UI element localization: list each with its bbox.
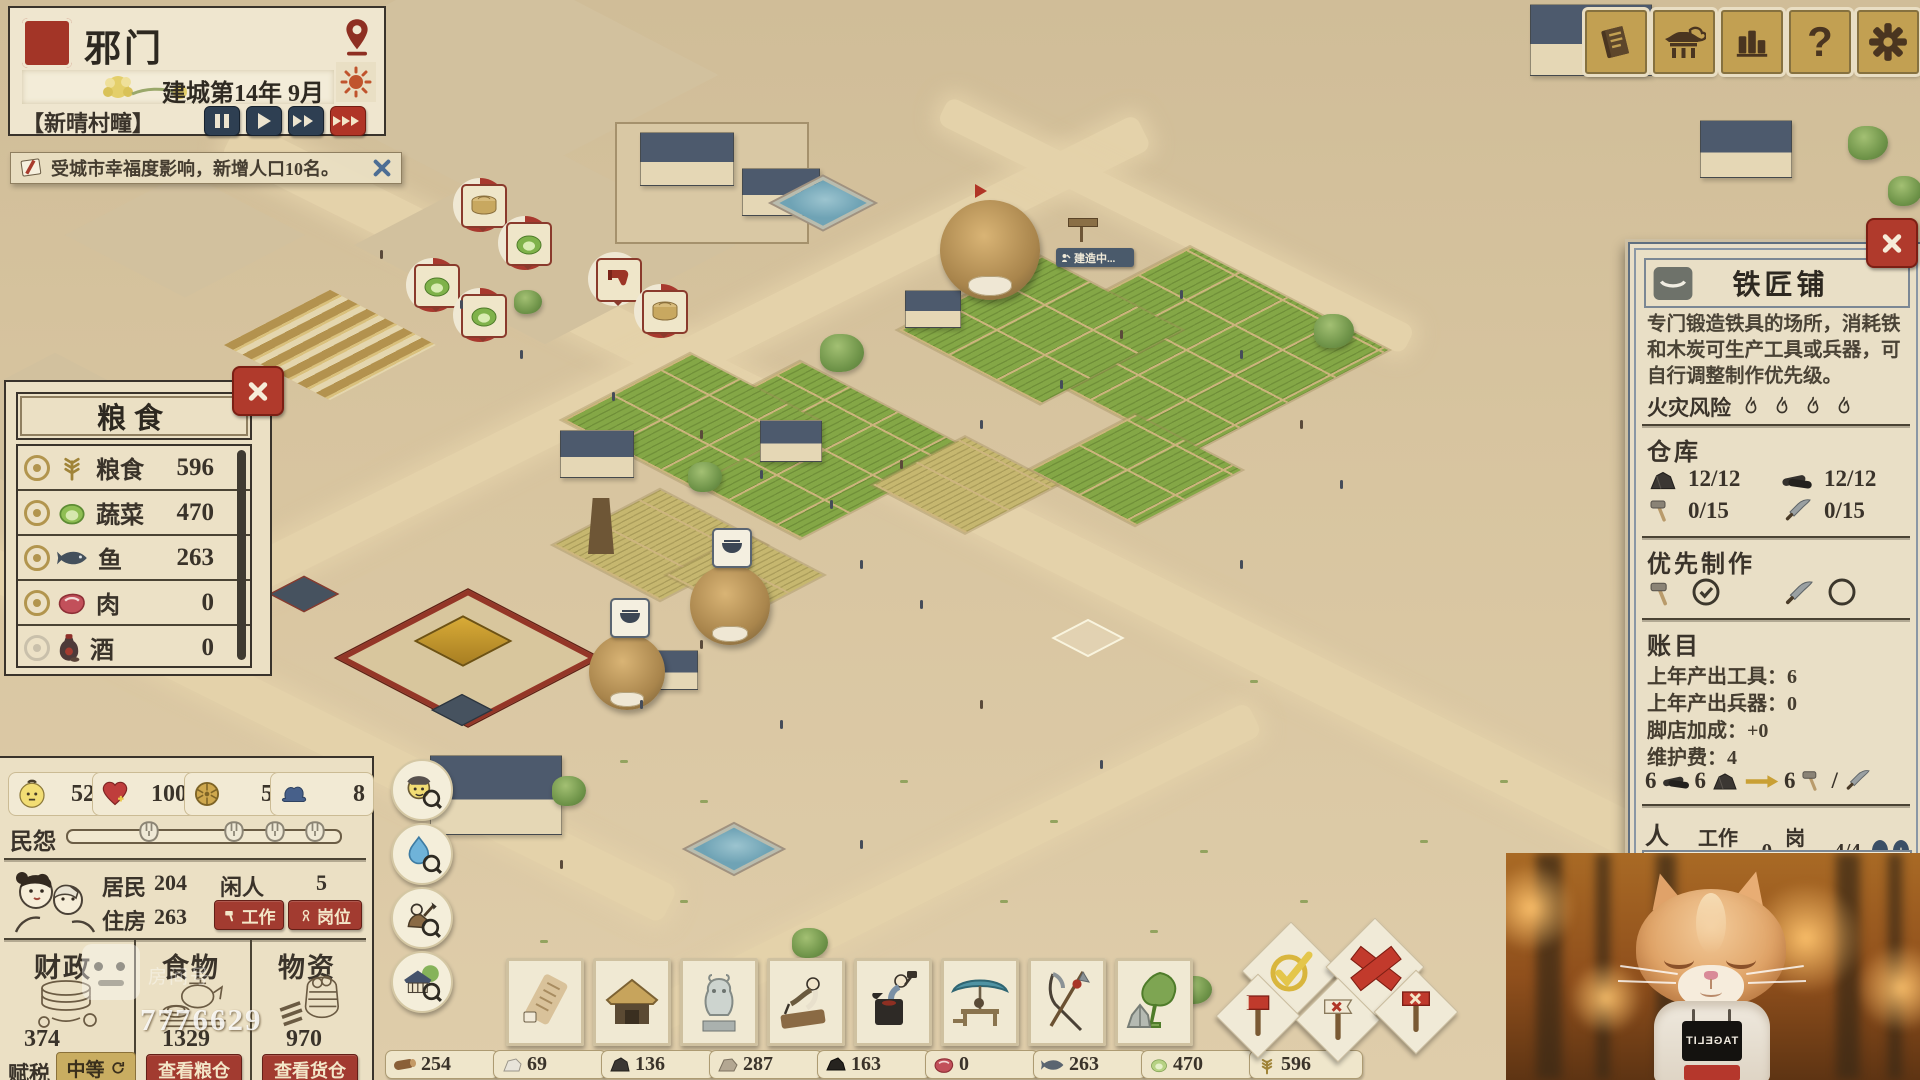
pin-toggle[interactable]: [24, 545, 50, 571]
view-warehouse-label: 查看货仓: [274, 1057, 346, 1080]
clay-icon: [716, 1056, 740, 1074]
temple-tree-icon: [1662, 22, 1706, 62]
resource-clay[interactable]: 287: [709, 1050, 823, 1079]
room-number: 7776629: [140, 1002, 263, 1038]
iron-ore-icon: [608, 1056, 632, 1074]
worker-magnifier-icon: [401, 897, 443, 939]
thumbs-down-icon: [606, 268, 632, 292]
tree-rock-card-art: [1124, 969, 1184, 1035]
food-name: 酒: [90, 630, 114, 665]
buildings-overview-button[interactable]: [1653, 10, 1715, 74]
vegetable-icon: [1148, 1056, 1170, 1074]
hoodie-red-patch: [1684, 1065, 1740, 1080]
population-chip[interactable]: 52: [8, 772, 104, 816]
finance-value: 374: [24, 1026, 60, 1053]
resource-meat[interactable]: 0: [925, 1050, 1039, 1079]
settings-button[interactable]: [1857, 10, 1919, 74]
resource-value: 163: [851, 1053, 881, 1076]
cat-eye-right: [1726, 951, 1756, 969]
food-row[interactable]: 蔬菜 470: [18, 491, 250, 536]
fire-risk-row: 火灾风险: [1647, 392, 1855, 422]
tree: [1848, 126, 1888, 160]
tool-hammer-icon: [1647, 498, 1679, 524]
resource-fish[interactable]: 263: [1033, 1050, 1147, 1079]
formula-charcoal-count: 6: [1645, 768, 1657, 794]
tax-level-button[interactable]: 中等: [56, 1052, 136, 1080]
inspect-workers-button[interactable]: [391, 887, 453, 949]
work-button[interactable]: 工作: [214, 900, 284, 930]
official-value: 8: [353, 781, 365, 808]
refresh-icon: [110, 1060, 126, 1076]
residents-couple-art: [6, 864, 96, 934]
fish-icon: [1040, 1057, 1066, 1073]
smithy-icon: [1653, 267, 1693, 300]
ledger-title: 账目: [1647, 626, 1701, 661]
notification-text: 受城市幸福度影响，新增人口10名。: [51, 155, 339, 181]
facecam-overlay: TAGELIT: [1506, 853, 1920, 1080]
tree: [552, 776, 586, 806]
pin-toggle[interactable]: [24, 500, 50, 526]
resource-value: 596: [1281, 1053, 1311, 1076]
food-name: 蔬菜: [96, 495, 144, 530]
building-magnifier-icon: [401, 961, 443, 1003]
food-value: 0: [202, 634, 215, 662]
inspect-water-button[interactable]: [391, 823, 453, 885]
ledger-line: 上年产出工具：6: [1647, 660, 1797, 689]
season-banner: 建城第14年 9月: [22, 70, 334, 104]
iron-stock: 12/12: [1688, 466, 1740, 492]
meat-icon: [56, 590, 88, 616]
food-rows: 粮食 596 蔬菜 470 鱼 263 肉 0: [16, 444, 252, 668]
food-name: 鱼: [98, 540, 122, 575]
hammer-icon: [223, 908, 238, 923]
villager-request-bubble: [504, 220, 550, 270]
villager-request-bubble: [412, 262, 458, 312]
meat-icon: [932, 1056, 956, 1074]
food-value: 0: [202, 589, 215, 617]
blacksmith-close-button[interactable]: [1866, 218, 1918, 268]
priority-title: 优先制作: [1647, 544, 1755, 579]
house[interactable]: [905, 290, 961, 328]
food-row[interactable]: 酒 0: [18, 626, 250, 669]
resource-iron[interactable]: 136: [601, 1050, 715, 1079]
ledger-line: 脚店加成：+0: [1647, 714, 1768, 743]
flame-icon: [1771, 395, 1793, 419]
house[interactable]: [1700, 120, 1792, 178]
charcoal-stock: 12/12: [1824, 466, 1876, 492]
villager-request-bubble: [594, 256, 640, 306]
location-pin-icon[interactable]: [342, 18, 372, 58]
play-icon: [258, 113, 279, 129]
question-mark-icon: ?: [1807, 18, 1833, 66]
flag-axe-icon: [1318, 997, 1358, 1043]
flag: [975, 184, 994, 198]
formula-output-count: 6: [1784, 768, 1796, 794]
meal-request-bubble: [712, 528, 752, 568]
work-button-label: 工作: [242, 903, 276, 928]
vegetable-icon: [56, 499, 88, 527]
tree: [820, 334, 864, 372]
goods-value: 970: [286, 1026, 322, 1053]
resource-charcoal[interactable]: 163: [817, 1050, 931, 1079]
game-screen: 建造中... 邪门 建城第14年 9月 【新晴村疃】: [0, 0, 1920, 1080]
ribbon-person-icon: [299, 908, 313, 923]
villager-request-bubble: [459, 182, 505, 232]
weapon-dagger-icon: [1842, 769, 1872, 793]
weapon-dagger-icon: [1780, 498, 1814, 524]
house[interactable]: [560, 430, 634, 478]
weather-label: 【新晴村疃】: [22, 106, 154, 138]
housing-label: 住房: [102, 904, 146, 936]
village-name: 邪门: [84, 18, 164, 72]
fist-marker-icon[interactable]: [260, 814, 290, 848]
build-card-commerce[interactable]: [941, 958, 1019, 1046]
fist-marker-icon[interactable]: [219, 814, 249, 848]
resource-wood[interactable]: 254: [385, 1050, 499, 1079]
cat-eye-left: [1664, 951, 1694, 969]
idle-value: 5: [316, 870, 327, 896]
idle-label: 闲人: [220, 870, 264, 902]
selected-tile-cursor: [1051, 619, 1125, 657]
wine-icon: [56, 633, 82, 663]
tax-label: 赋税: [8, 1058, 50, 1080]
gear-icon: [1867, 21, 1909, 63]
room-label: 房间号: [148, 962, 211, 989]
house[interactable]: [640, 132, 734, 186]
food-scrollbar[interactable]: [237, 450, 246, 660]
build-card-farming[interactable]: [767, 958, 845, 1046]
axe-icon: [1238, 993, 1278, 1039]
book-icon: [1596, 22, 1636, 62]
stone-icon: [500, 1056, 524, 1074]
weapon-stock: 0/15: [1824, 498, 1865, 524]
iron-ore-icon: [1710, 770, 1740, 792]
grain-icon: [1256, 1055, 1278, 1075]
vegetable-icon: [422, 273, 452, 299]
steamer-food-icon: [469, 193, 499, 219]
letter-scroll-icon: [19, 156, 43, 180]
pin-toggle[interactable]: [24, 455, 50, 481]
inspect-buildings-button[interactable]: [391, 951, 453, 1013]
statistics-button[interactable]: [1721, 10, 1783, 74]
resource-value: 254: [421, 1053, 451, 1076]
fast-forward-icon: [293, 115, 319, 127]
food-value: 596: [177, 454, 215, 482]
charcoal-icon: [1661, 770, 1691, 792]
village-info-panel: 邪门 建城第14年 9月 【新晴村疃】: [8, 6, 386, 136]
arrow-right-icon: [1744, 774, 1780, 789]
douyu-logo: [82, 944, 140, 1000]
bowl-icon: [619, 610, 641, 626]
construction-tooltip: 建造中...: [1056, 248, 1134, 267]
watchtower: [588, 498, 614, 554]
round-hut[interactable]: [690, 565, 770, 645]
fist-marker-icon[interactable]: [134, 814, 164, 848]
vegetable-icon: [469, 303, 499, 329]
villager-request-bubble: [459, 292, 505, 342]
tool-hammer-icon: [1800, 769, 1828, 793]
post-button-label: 岗位: [317, 903, 351, 928]
help-button[interactable]: ?: [1789, 10, 1851, 74]
resource-value: 263: [1069, 1053, 1099, 1076]
close-icon: [1881, 232, 1903, 254]
tree: [792, 928, 828, 958]
village-seal-icon: [22, 18, 72, 68]
pin-toggle[interactable]: [24, 590, 50, 616]
teahouse-card-art: [949, 969, 1011, 1035]
weapons-card-art: [1039, 968, 1095, 1036]
view-granary-label: 查看粮仓: [158, 1057, 230, 1080]
pause-button[interactable]: [204, 106, 240, 136]
happiness-chip[interactable]: 100: [92, 772, 196, 816]
goods-sketch: [266, 972, 356, 1030]
water-magnifier-icon: [401, 833, 443, 875]
housing-block: [65, 172, 305, 297]
red-axe-x-icon: [1396, 989, 1436, 1035]
fire-risk-label: 火灾风险: [1647, 392, 1731, 422]
cross-icon: [1350, 942, 1400, 992]
fist-marker-icon[interactable]: [300, 814, 330, 848]
notification-bar: 受城市幸福度影响，新增人口10名。: [10, 152, 402, 184]
flame-icon: [1802, 395, 1824, 419]
food-row[interactable]: 鱼 263: [18, 536, 250, 581]
hoodie-label: TAGELIT: [1682, 1021, 1742, 1061]
farmer-card-art: [775, 970, 837, 1034]
grievance-label: 民怨: [10, 822, 56, 856]
bowl-icon: [721, 540, 743, 556]
citizen-magnifier-icon: [401, 769, 443, 811]
resource-value: 470: [1173, 1053, 1203, 1076]
sun-weather-icon[interactable]: [336, 62, 376, 102]
resource-vegetable[interactable]: 470: [1141, 1050, 1255, 1079]
build-card-military[interactable]: [1028, 958, 1106, 1046]
food-value: 470: [177, 499, 215, 527]
fast-forward-button[interactable]: [288, 106, 324, 136]
pond: [693, 828, 775, 871]
priority-checked-icon[interactable]: [1690, 576, 1722, 608]
journal-button[interactable]: [1585, 10, 1647, 74]
tool-stock: 0/15: [1688, 498, 1729, 524]
housing-value: 263: [154, 904, 187, 930]
wood-icon: [392, 1056, 418, 1074]
ledger-line: 上年产出兵器：0: [1647, 687, 1797, 716]
iron-ore-icon: [1647, 468, 1679, 492]
build-card-industry[interactable]: [854, 958, 932, 1046]
tree: [1888, 176, 1920, 206]
ledger-line: 维护费：4: [1647, 741, 1737, 770]
villager-request-bubble: [640, 288, 686, 338]
food-value: 263: [177, 544, 215, 572]
resource-value: 69: [527, 1053, 547, 1076]
food-stock-panel: 粮食 粮食 596 蔬菜 470 鱼 263: [4, 380, 272, 676]
food-panel-header: 粮食: [16, 392, 252, 440]
food-panel-close-button[interactable]: [232, 366, 284, 416]
construction-label: 建造中...: [1074, 250, 1115, 266]
inspect-citizens-button[interactable]: [391, 759, 453, 821]
resource-value: 287: [743, 1053, 773, 1076]
steamer-food-icon: [650, 299, 680, 325]
official-chip[interactable]: 8: [270, 772, 374, 816]
resource-value: 0: [959, 1053, 969, 1076]
pause-icon: [215, 114, 229, 128]
food-name: 粮食: [96, 450, 144, 485]
charcoal-icon: [824, 1056, 848, 1074]
tax-level-value: 中等: [66, 1055, 104, 1080]
residents-label: 居民: [102, 870, 146, 902]
blacksmith-title: 铁匠铺: [1693, 263, 1868, 303]
formula-iron-count: 6: [1695, 768, 1707, 794]
builder-icon: [1061, 253, 1071, 263]
formula-separator: /: [1832, 768, 1838, 794]
fastest-forward-icon: [333, 116, 364, 126]
warehouse-title: 仓库: [1647, 432, 1701, 467]
bar-chart-icon: [1733, 23, 1771, 61]
flame-icon: [1833, 395, 1855, 419]
flame-icon: [1740, 395, 1762, 419]
wheel-coin-icon: [193, 780, 221, 808]
notification-close-icon[interactable]: [373, 159, 391, 177]
priority-unchecked-icon[interactable]: [1826, 576, 1858, 608]
food-row[interactable]: 肉 0: [18, 581, 250, 626]
fastest-forward-button[interactable]: [330, 106, 366, 136]
citizen-face-icon: [17, 779, 47, 809]
house[interactable]: [760, 420, 822, 462]
view-warehouse-button[interactable]: 查看货仓: [262, 1054, 358, 1080]
happiness-value: 100: [151, 781, 187, 808]
production-formula: 6 6 6 /: [1645, 768, 1872, 794]
hoodie-label-text: TAGELIT: [1685, 1035, 1738, 1047]
hut-card-art: [601, 972, 663, 1032]
build-card-landscape[interactable]: [1115, 958, 1193, 1046]
post-button[interactable]: 岗位: [288, 900, 362, 930]
food-panel-title: 粮食: [97, 395, 171, 437]
vegetable-icon: [514, 231, 544, 257]
coin-chip[interactable]: 5: [184, 772, 282, 816]
close-icon: [247, 380, 269, 402]
build-card-decoration[interactable]: [680, 958, 758, 1046]
grain-icon: [56, 453, 88, 483]
cat-avatar: TAGELIT: [1626, 873, 1806, 1080]
blacksmith-description: 专门锻造铁具的场所，消耗铁和木炭可生产工具或兵器，可自行调整制作优先级。: [1647, 312, 1905, 390]
signboard: [1068, 218, 1098, 227]
pin-toggle[interactable]: [24, 635, 50, 661]
view-granary-button[interactable]: 查看粮仓: [146, 1054, 242, 1080]
granary-round-hut[interactable]: [940, 200, 1040, 300]
build-card-road[interactable]: [506, 958, 584, 1046]
round-hut[interactable]: [589, 634, 665, 710]
official-hat-icon: [279, 782, 309, 806]
charcoal-icon: [1780, 468, 1814, 492]
weapon-dagger-icon: [1780, 580, 1816, 608]
meal-request-bubble: [610, 598, 650, 638]
play-button[interactable]: [246, 106, 282, 136]
grass-tufts: [0, 0, 8, 3]
food-name: 肉: [96, 585, 120, 620]
stone-lion-card-art: [695, 969, 743, 1035]
resource-value: 136: [635, 1053, 665, 1076]
blacksmith-card-art: [863, 969, 923, 1035]
food-row[interactable]: 粮食 596: [18, 446, 250, 491]
road-card-art: [516, 970, 574, 1034]
tool-hammer-icon: [1647, 580, 1681, 608]
founding-date: 建城第14年 9月: [162, 73, 324, 108]
resource-stone[interactable]: 69: [493, 1050, 607, 1079]
build-card-housing[interactable]: [593, 958, 671, 1046]
heart-icon: [101, 780, 129, 808]
fish-icon: [56, 546, 90, 570]
residents-value: 204: [154, 870, 187, 896]
